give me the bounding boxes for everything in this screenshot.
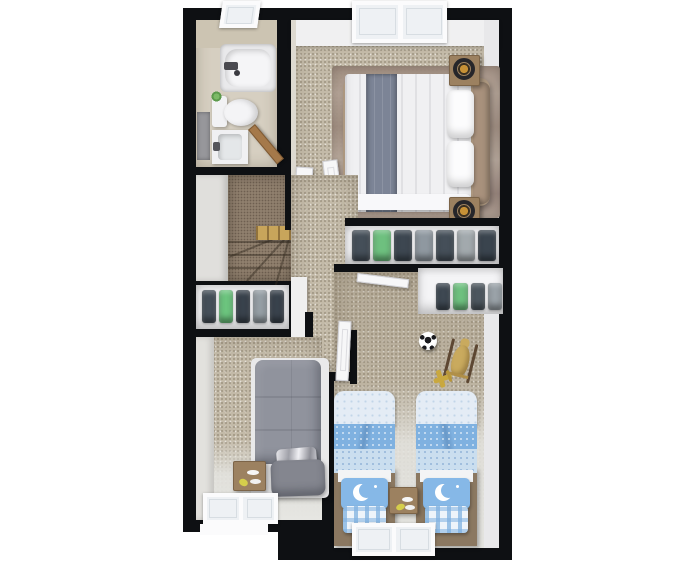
garment bbox=[488, 283, 502, 310]
master-closet-clothes bbox=[352, 229, 496, 262]
stair-left-wall-face bbox=[196, 175, 228, 281]
garment bbox=[478, 230, 496, 260]
floor-plan-render bbox=[0, 0, 696, 568]
kids-nightstand-toy-white-2 bbox=[405, 505, 415, 510]
master-pillow-bottom bbox=[447, 141, 474, 187]
kids-nightstand-toy-white-1 bbox=[402, 497, 413, 502]
master-headboard bbox=[473, 82, 490, 204]
bathtub bbox=[220, 44, 276, 92]
garment bbox=[202, 290, 216, 322]
lamp-icon-top bbox=[453, 58, 475, 80]
vanity-sink bbox=[218, 134, 242, 160]
tub-faucet-icon bbox=[224, 62, 238, 70]
garment bbox=[415, 230, 433, 260]
garment bbox=[436, 230, 454, 260]
bedroom-2-window-sill bbox=[200, 524, 268, 535]
shower-glass-panel bbox=[197, 112, 210, 160]
bottom-left-cutout bbox=[183, 532, 278, 568]
garment bbox=[236, 290, 250, 322]
tub-faucet-handle-icon bbox=[234, 70, 240, 76]
garment bbox=[373, 230, 391, 260]
garment bbox=[352, 230, 370, 260]
garment bbox=[394, 230, 412, 260]
garment bbox=[253, 290, 267, 322]
master-closet-top-wall bbox=[345, 218, 499, 226]
garment bbox=[270, 290, 284, 322]
bathroom-window bbox=[219, 1, 261, 28]
garment bbox=[219, 290, 233, 322]
garment bbox=[453, 283, 467, 310]
vanity-counter bbox=[212, 130, 248, 164]
master-bed-runner bbox=[366, 74, 397, 212]
nightstand-item-white-2 bbox=[250, 479, 261, 484]
garment bbox=[471, 283, 485, 310]
master-pillow-top bbox=[447, 90, 474, 138]
kids-closet-clothes bbox=[436, 282, 502, 311]
hall-closet-clothes bbox=[202, 289, 284, 324]
soccer-ball-icon bbox=[419, 332, 437, 350]
garment bbox=[436, 283, 450, 310]
kids-room-window bbox=[352, 523, 435, 556]
vanity-faucet-icon bbox=[213, 142, 220, 151]
gray-bed-pillow bbox=[270, 459, 325, 497]
bedroom-2-nightstand bbox=[233, 461, 266, 491]
toilet-bowl bbox=[224, 99, 258, 126]
garment bbox=[457, 230, 475, 260]
moon-pillow bbox=[423, 478, 470, 509]
toilet-plant-icon bbox=[211, 91, 222, 102]
moon-pillow bbox=[341, 478, 388, 509]
master-bedroom-window bbox=[352, 1, 447, 43]
nightstand-item-white-1 bbox=[247, 470, 259, 475]
bedroom-2-window bbox=[203, 493, 278, 524]
